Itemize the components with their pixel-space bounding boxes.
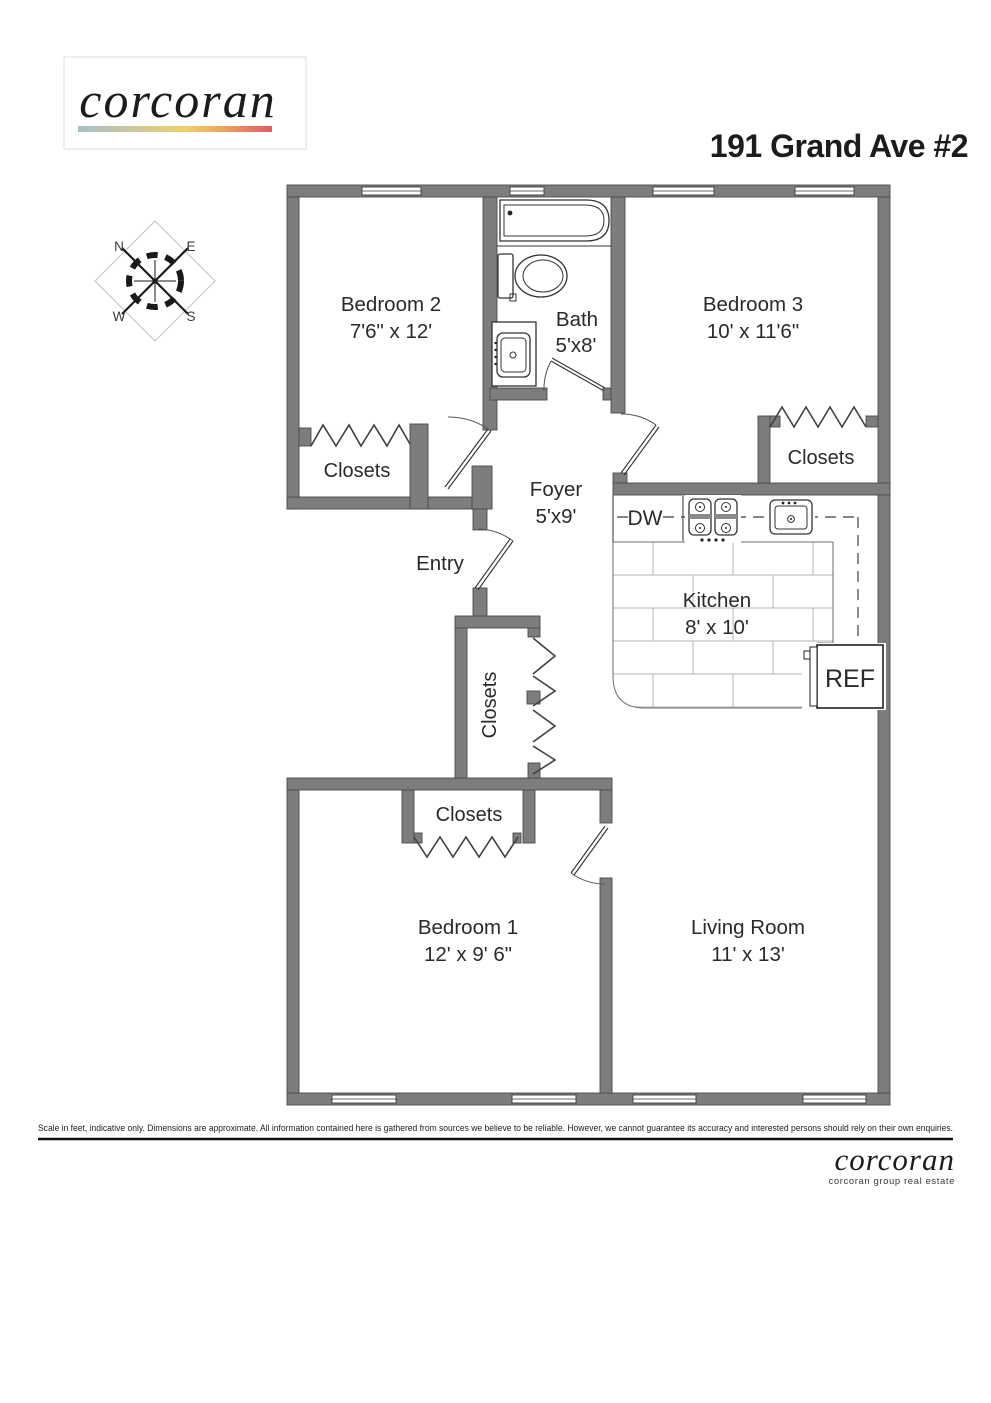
door-bedroom3: [621, 414, 659, 475]
bath-sink-icon: [492, 322, 536, 386]
closet-label-bedroom1: Closets: [436, 804, 503, 826]
kitchen-sink-icon: [767, 497, 815, 538]
compass-w: W: [113, 309, 126, 324]
floor-plan: corcoran 191 Grand Ave #2 N E W S: [0, 0, 991, 1403]
room-label-living-room: Living Room: [691, 916, 805, 939]
window: [512, 1095, 576, 1103]
footer-logo: corcoran: [835, 1142, 956, 1177]
window: [510, 187, 544, 195]
footer-tagline: corcoran group real estate: [829, 1176, 956, 1187]
window: [653, 187, 714, 195]
window: [332, 1095, 396, 1103]
door-bath: [544, 358, 605, 391]
compass-s: S: [186, 309, 195, 324]
closet-label-bedroom3: Closets: [788, 447, 855, 469]
dishwasher-label: DW: [628, 507, 663, 530]
window: [803, 1095, 866, 1103]
bedroom1-closet-doors: [414, 837, 518, 857]
room-dims-foyer: 5'x9': [536, 505, 577, 528]
room-dims-bath: 5'x8': [556, 334, 597, 357]
bathtub-icon: [497, 200, 611, 246]
room-dims-bedroom2: 7'6" x 12': [350, 320, 432, 343]
logo-wordmark: corcoran: [79, 72, 276, 128]
stove-icon: [685, 495, 741, 543]
logo-gradient-bar: [78, 126, 272, 132]
disclaimer-text: Scale in feet, indicative only. Dimensio…: [38, 1123, 953, 1133]
floor-plan-page: corcoran 191 Grand Ave #2 N E W S: [0, 0, 991, 1403]
room-dims-bedroom1: 12' x 9' 6": [424, 943, 512, 966]
toilet-icon: [498, 254, 567, 301]
window: [795, 187, 854, 195]
room-dims-kitchen: 8' x 10': [685, 616, 749, 639]
room-label-bedroom2: Bedroom 2: [341, 293, 441, 316]
compass-e: E: [186, 239, 195, 254]
bedroom3-closet-doors: [770, 407, 866, 427]
hall-closet-doors: [533, 638, 555, 774]
door-entry: [475, 529, 513, 590]
compass-n: N: [114, 239, 124, 254]
entry-label: Entry: [416, 552, 465, 575]
window: [633, 1095, 696, 1103]
corcoran-logo: corcoran: [64, 57, 306, 149]
door-bedroom1: [571, 826, 608, 884]
room-dims-bedroom3: 10' x 11'6": [707, 320, 799, 343]
room-label-kitchen: Kitchen: [683, 589, 751, 612]
refrigerator-label: REF: [825, 665, 875, 693]
refrigerator-icon: REF: [802, 643, 886, 710]
page-title: 191 Grand Ave #2: [710, 128, 968, 164]
room-label-foyer: Foyer: [530, 478, 583, 501]
closet-label-bedroom2: Closets: [324, 460, 391, 482]
compass-rose: N E W S: [95, 221, 215, 341]
room-label-bedroom3: Bedroom 3: [703, 293, 803, 316]
compass-center: [152, 278, 157, 283]
room-dims-living-room: 11' x 13': [711, 943, 785, 966]
room-label-bath: Bath: [556, 308, 598, 331]
window: [362, 187, 421, 195]
bedroom2-closet-doors: [311, 425, 410, 446]
room-label-bedroom1: Bedroom 1: [418, 916, 518, 939]
closet-label-hall: Closets: [479, 672, 501, 739]
